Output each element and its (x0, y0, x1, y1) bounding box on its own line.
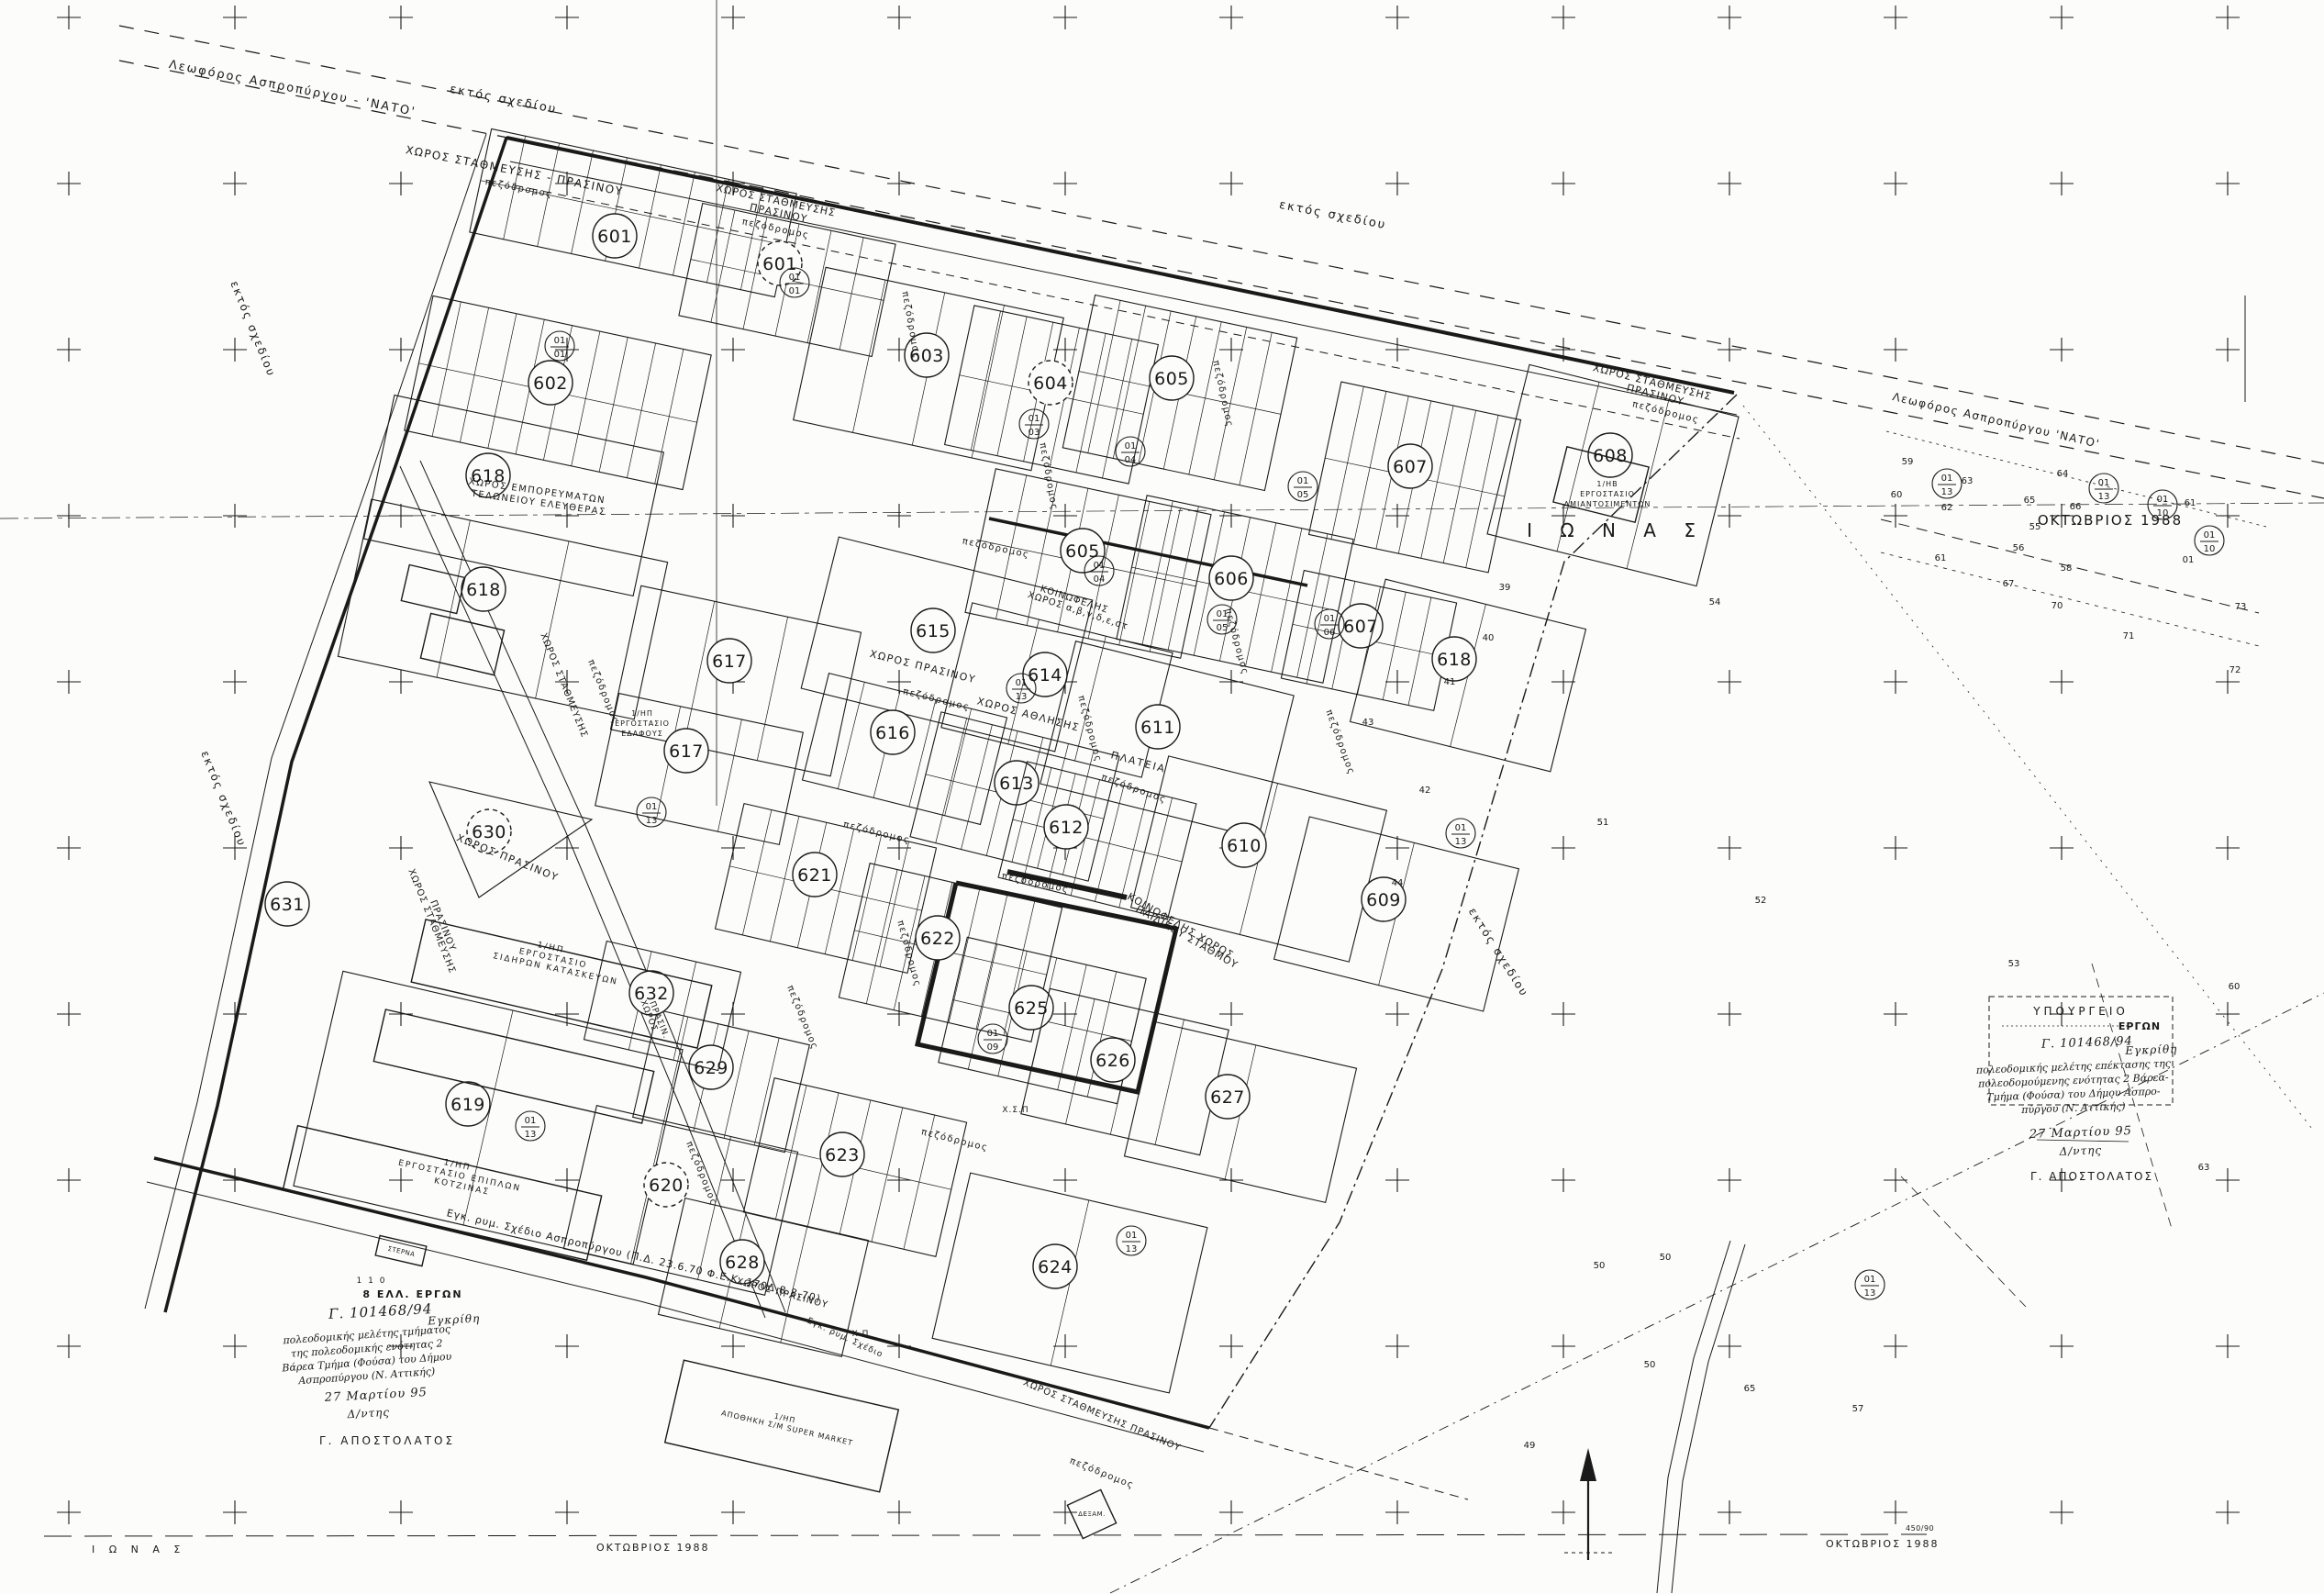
off-plan-west-lower: εκτός σχεδίου (198, 749, 249, 849)
pedestrian-street-labels: πεζόδρομοςπεζόδρομοςπεζόδρομοςπεζόδρομος… (484, 176, 1701, 1491)
plan-north-boundary-bold (506, 138, 1734, 393)
registration-cross (389, 1002, 413, 1026)
nato-avenue-south-edge (119, 61, 2324, 498)
parcel-number: 50 (1644, 1360, 1656, 1370)
pezodromos-label: πεζόδρομος (1038, 442, 1061, 512)
map-text: 01 (2157, 495, 2169, 505)
parcel-number: 58 (2061, 563, 2073, 574)
building-blocks: 6016016026036046056056066076076086186186… (265, 128, 1739, 1393)
block-607: 607 (1281, 571, 1456, 711)
registration-cross (223, 6, 247, 29)
registration-cross (1219, 1500, 1243, 1524)
block-number-605: 605 (1154, 369, 1189, 389)
registration-cross (1551, 1002, 1575, 1026)
factory-617: ΕΔΑΦΟΥΣ (621, 730, 663, 738)
factory-asbestos: ΑΜΙΑΝΤΟΣΙΜΕΝΤΩΝ (1564, 500, 1651, 508)
parcel-number: 49 (1524, 1441, 1536, 1451)
registration-cross (57, 6, 81, 29)
block-number-606: 606 (1214, 569, 1249, 589)
registration-cross (1385, 1168, 1409, 1192)
map-text: 01 (1324, 614, 1336, 624)
fraction-marker: 0105 (1288, 472, 1318, 501)
registration-cross (1884, 836, 1907, 860)
registration-cross (2216, 1168, 2240, 1192)
map-text: 09 (987, 1042, 999, 1053)
sterna: ΣΤΕΡΝΑ (387, 1245, 416, 1259)
parcel-number: 66 (2070, 502, 2082, 512)
parcel-number: 50 (1594, 1261, 1606, 1271)
registration-cross (1385, 338, 1409, 362)
fraction-marker: 0113 (2089, 474, 2118, 503)
big-spaced-ionas: Ι Ω Ν Α Σ (1527, 519, 1707, 541)
map-text: 01 (1094, 561, 1106, 571)
parcel-number: 62 (1941, 503, 1953, 513)
registration-cross (57, 172, 81, 195)
registration-cross (57, 1500, 81, 1524)
registration-cross (1551, 1500, 1575, 1524)
north-arrow (1564, 1448, 1612, 1560)
block-number-601: 601 (762, 254, 797, 274)
right-street-edge-2 (1672, 1244, 1745, 1593)
registration-cross (2050, 6, 2074, 29)
pezodromos-label: πεζόδρομος (1323, 708, 1357, 777)
director-abbrev: Δ/ντης (2058, 1143, 2102, 1158)
registration-cross (57, 1168, 81, 1192)
registration-cross (1718, 504, 1741, 528)
map-text: 01 (2204, 530, 2216, 541)
registration-cross (2216, 1500, 2240, 1524)
block-number-620: 620 (649, 1176, 684, 1196)
registration-cross (1219, 6, 1243, 29)
dexameni: ΔΕΞΑΜ. (1078, 1510, 1106, 1518)
registration-cross (887, 504, 911, 528)
registration-cross (57, 1002, 81, 1026)
fraction-marker: 0113 (1117, 1226, 1146, 1255)
map-text: 01 (1864, 1275, 1876, 1285)
registration-cross (721, 1500, 745, 1524)
registration-cross (1718, 670, 1741, 694)
block-605: 605 (1062, 295, 1296, 491)
approval-date: 27 Μαρτίου 95 (2029, 1124, 2133, 1142)
registration-cross (1884, 338, 1907, 362)
map-text: 13 (1941, 487, 1953, 497)
block-number-626: 626 (1095, 1051, 1130, 1071)
map-text: 01 (1941, 474, 1953, 484)
building-outline (373, 1009, 653, 1123)
registration-cross (1551, 6, 1575, 29)
right-street-edge-1 (1657, 1241, 1730, 1593)
pezodromos-label: πεζόδρομος (1075, 694, 1104, 763)
map-text: 04 (1094, 574, 1106, 585)
registration-cross (389, 172, 413, 195)
registration-cross (1219, 504, 1243, 528)
registration-cross (223, 670, 247, 694)
block-617: 617 (595, 694, 804, 845)
stamp-title: ΥΠΟΥΡΓΕΙΟ (2032, 1005, 2129, 1018)
block-number-602: 602 (533, 373, 568, 394)
registration-cross (223, 338, 247, 362)
off-plan-west-upper: εκτός σχεδίου (228, 279, 278, 379)
block-number-615: 615 (916, 621, 951, 641)
parcel-number: 67 (2003, 579, 2015, 589)
map-text: 01 (554, 350, 566, 360)
parcel-number: 56 (2013, 543, 2025, 553)
registration-cross (1551, 1334, 1575, 1358)
boundary-decree-label: Εγκ. ρυμ. Σχέδιο Ασπροπύργου (Π.Δ. 23.6.… (446, 1207, 822, 1305)
registration-cross (1884, 6, 1907, 29)
map-text: 13 (525, 1130, 537, 1140)
map-text: 01 (1297, 476, 1309, 486)
registration-cross (1385, 1500, 1409, 1524)
pezodromos-label: πεζόδρομος (962, 535, 1031, 560)
map-text: 01 (1455, 823, 1467, 833)
block-number-611: 611 (1140, 718, 1175, 738)
registration-cross (721, 6, 745, 29)
parcel-number: 53 (2008, 959, 2020, 969)
parcel-number: 50 (1660, 1253, 1672, 1263)
green-615: ΧΩΡΟΣ ΠΡΑΣΙΝΟΥ (869, 648, 978, 686)
mid-heavy-segment (989, 518, 1307, 585)
frame-text: ΟΚΤΩΒΡΙΟΣ 1988 (1826, 1538, 1940, 1550)
block-618: 618 (1351, 579, 1586, 772)
registration-cross (57, 338, 81, 362)
block-number-623: 623 (825, 1145, 860, 1165)
parcel-number: 60 (1891, 490, 1903, 500)
block-number-622: 622 (920, 929, 955, 949)
map-text: 01 (1125, 441, 1137, 451)
map-text: 05 (1217, 623, 1229, 633)
block-number-613: 613 (999, 774, 1034, 794)
registration-cross (2050, 338, 2074, 362)
map-text: 13 (1864, 1288, 1876, 1299)
parcel-number: 43 (1362, 718, 1374, 728)
protocol-number: Γ. 101468/94 (2040, 1034, 2133, 1052)
registration-cross (2050, 1334, 2074, 1358)
parcel-number: 61 (1935, 553, 1947, 563)
registration-cross (1053, 172, 1077, 195)
block-number-607: 607 (1393, 457, 1428, 477)
registration-cross (1385, 836, 1409, 860)
registration-cross (887, 1168, 911, 1192)
block-number-601: 601 (597, 227, 632, 247)
block-603: 603 (794, 267, 1064, 470)
registration-cross (1718, 172, 1741, 195)
map-text: 13 (1016, 692, 1028, 702)
registration-cross (721, 338, 745, 362)
registration-cross (1219, 1334, 1243, 1358)
fraction-marker: 0113 (637, 797, 666, 827)
factory-617: ΕΡΓΟΣΤΑΣΙΟ (615, 719, 670, 728)
registration-cross (1718, 1334, 1741, 1358)
block-number-629: 629 (694, 1058, 728, 1078)
stamp-sub: ΕΡΓΩΝ (2118, 1020, 2161, 1032)
parcel-number: 64 (2057, 469, 2069, 479)
parcel-number: 61 (2185, 498, 2196, 508)
registration-cross (2050, 670, 2074, 694)
registration-cross (1884, 1002, 1907, 1026)
registration-cross (1219, 172, 1243, 195)
pezodromos-label: πεζόδρομος (784, 984, 820, 1052)
registration-cross (1385, 1002, 1409, 1026)
registration-cross (389, 670, 413, 694)
registration-cross (389, 1168, 413, 1192)
map-text: 01 (1126, 1231, 1138, 1241)
block-number-610: 610 (1227, 836, 1262, 856)
fold-crease-horizontal (0, 503, 2324, 518)
approved-word: Εγκρίθη (2124, 1042, 2177, 1057)
block-number-628: 628 (725, 1253, 760, 1273)
signature-name: Γ. ΑΠΟΣΤΟΛΑΤΟΣ (2030, 1170, 2153, 1183)
block-631: 631 (265, 882, 309, 926)
block-618: 618 (338, 499, 667, 719)
registration-cross (1551, 1168, 1575, 1192)
approval-date: 27 Μαρτίου 95 (323, 1386, 428, 1405)
map-text: 01 (789, 273, 801, 283)
building-outline (420, 613, 504, 674)
ne-dotted-diagonal (1743, 406, 2312, 1129)
frame-text: 450/90 (1906, 1524, 1934, 1533)
frame-text: Ι Ω Ν Α Σ (92, 1544, 185, 1555)
registration-cross (1053, 6, 1077, 29)
registration-cross (555, 1500, 579, 1524)
map-text: 13 (2098, 492, 2110, 502)
stamp-area-diagonal-2 (1901, 1176, 2026, 1307)
registration-cross (721, 836, 745, 860)
map-text: 04 (1125, 455, 1137, 465)
registration-cross (389, 836, 413, 860)
parking-strip-line (510, 162, 1737, 415)
approval-note-bottom: 1 1 08 ΕΛΛ. ΕΡΓΩΝΓ. 101468/94Εγκρίθηπολε… (281, 1276, 481, 1447)
signature-name: Γ. ΑΠΟΣΤΟΛΑΤΟΣ (319, 1434, 455, 1447)
registration-cross (223, 504, 247, 528)
pezodromos-label: πεζόδρομος (902, 686, 972, 713)
block-number-618: 618 (466, 580, 501, 600)
registration-cross (57, 1334, 81, 1358)
cadastral-map-sheet: 6016016026036046056056066076076086186186… (0, 0, 2324, 1594)
registration-cross (1385, 670, 1409, 694)
avenue-label-east: Λεωφόρος Ασπροπύργου 'ΝΑΤΟ' (1891, 390, 2101, 451)
parcel-number: 72 (2229, 665, 2241, 675)
registration-cross (223, 172, 247, 195)
registration-cross (721, 1334, 745, 1358)
stamp-small: 1 1 0 (357, 1276, 387, 1286)
registration-cross (1718, 1168, 1741, 1192)
parking-branch: ΧΩΡΟΣ ΣΤΑΘΜΕΥΣΗΣ (538, 631, 589, 739)
registration-cross (1551, 836, 1575, 860)
parcel-number: 54 (1709, 597, 1721, 608)
registration-cross (57, 836, 81, 860)
registration-cross (1718, 1500, 1741, 1524)
map-text: 01 (2098, 478, 2110, 488)
registration-cross (1884, 670, 1907, 694)
west-road-edge (145, 134, 486, 1309)
registration-cross (1385, 172, 1409, 195)
director-abbrev: Δ/ντης (346, 1406, 390, 1421)
parcel-number: 52 (1755, 896, 1767, 906)
registration-cross (887, 172, 911, 195)
registration-cross (1551, 172, 1575, 195)
registration-cross (57, 670, 81, 694)
block-number-614: 614 (1028, 665, 1062, 686)
block-number-607: 607 (1343, 617, 1378, 637)
block-number-627: 627 (1210, 1087, 1245, 1108)
registration-cross (555, 1334, 579, 1358)
registration-cross (2050, 836, 2074, 860)
parcel-number: 39 (1499, 583, 1511, 593)
registration-cross (2216, 1334, 2240, 1358)
fraction-marker: 0101 (545, 331, 574, 361)
block-number-617: 617 (712, 652, 747, 672)
south-boundary-cont (1209, 1428, 1468, 1499)
registration-cross (1884, 1168, 1907, 1192)
map-text: 01 (987, 1029, 999, 1039)
parcel-number: 70 (2052, 601, 2063, 611)
registration-cross (1219, 338, 1243, 362)
pezodromos-label: πεζόδρομος (842, 819, 912, 846)
registration-cross (1053, 1002, 1077, 1026)
factory-asbestos: 1/ΗΒ (1596, 480, 1618, 488)
registration-cross (389, 1500, 413, 1524)
registration-cross (2216, 6, 2240, 29)
registration-cross (555, 1002, 579, 1026)
cadastral-map-canvas: 6016016026036046056056066076076086186186… (0, 0, 2324, 1594)
map-text: 01 (789, 286, 801, 296)
october-1988-right: ΟΚΤΩΒΡΙΟΣ 1988 (2038, 512, 2183, 529)
registration-cross (1385, 6, 1409, 29)
south-road-edge (147, 1182, 1204, 1452)
pezodromos-label: πεζόδρομος (585, 658, 621, 726)
registration-cross (887, 6, 911, 29)
block-number-608: 608 (1593, 446, 1628, 466)
parcel-number: 71 (2123, 631, 2135, 641)
registration-cross (1884, 172, 1907, 195)
fraction-markers: 0101010101030104010501040105010601130113… (516, 268, 2224, 1299)
protocol-number: Γ. 101468/94 (328, 1300, 433, 1322)
pezodromos-label: πεζόδρομος (1100, 772, 1169, 806)
registration-cross (1053, 1500, 1077, 1524)
block-number-612: 612 (1049, 818, 1084, 838)
parcel-number: 40 (1483, 633, 1495, 643)
map-text: 05 (1297, 490, 1309, 500)
north-arrow-head (1580, 1448, 1596, 1481)
block-627: 627 (1125, 1022, 1357, 1203)
registration-cross (1385, 1334, 1409, 1358)
registration-cross (1219, 1002, 1243, 1026)
registration-cross (1884, 1334, 1907, 1358)
registration-cross (1718, 6, 1741, 29)
block-number-621: 621 (797, 865, 832, 886)
stamp-title: 8 ΕΛΛ. ΕΡΓΩΝ (362, 1288, 462, 1300)
map-text: 13 (1455, 837, 1467, 847)
parcel-number: 59 (1902, 457, 1914, 467)
parcel-number: 41 (1444, 677, 1456, 687)
block-623: 623 (743, 1078, 966, 1257)
fraction-marker: 0113 (516, 1111, 545, 1141)
registration-cross (2216, 836, 2240, 860)
fraction-marker: 0110 (2195, 526, 2224, 555)
map-text: 13 (646, 816, 658, 826)
xsp-abbrev: Χ.Σ.Π (1002, 1106, 1029, 1115)
registration-cross (57, 504, 81, 528)
parcel-number: 55 (2029, 522, 2041, 532)
map-text: 01 (525, 1116, 537, 1126)
fraction-marker: 0109 (978, 1024, 1007, 1053)
frame-text: ΟΚΤΩΒΡΙΟΣ 1988 (596, 1542, 710, 1554)
block-number-609: 609 (1366, 890, 1401, 910)
map-text: 01 (1016, 678, 1028, 688)
block-number-604: 604 (1033, 373, 1068, 394)
registration-cross (389, 338, 413, 362)
parcel-number: 73 (2235, 602, 2247, 612)
fraction-marker: 0113 (1932, 469, 1962, 498)
block-number-624: 624 (1038, 1257, 1073, 1277)
parcel-number: 51 (1597, 818, 1609, 828)
registration-cross (2216, 504, 2240, 528)
parcel-number: 60 (2229, 982, 2241, 992)
registration-cross (721, 504, 745, 528)
fraction-marker: 0113 (1446, 819, 1475, 848)
registration-cross (887, 1500, 911, 1524)
note-body-line: πύργου (Ν. Αττικής) (2020, 1100, 2126, 1116)
registration-cross (887, 1002, 911, 1026)
registration-cross (2216, 172, 2240, 195)
registration-cross (2050, 1500, 2074, 1524)
block-number-605: 605 (1065, 541, 1100, 562)
registration-cross (1385, 504, 1409, 528)
registration-cross (389, 6, 413, 29)
parcel-number: 63 (1962, 476, 1974, 486)
map-text: 06 (1324, 628, 1336, 638)
registration-cross (1718, 1002, 1741, 1026)
registration-cross (1884, 504, 1907, 528)
sheet-bottom-frame (44, 1534, 1927, 1536)
map-text: 10 (2204, 544, 2216, 554)
registration-cross (1718, 338, 1741, 362)
avenue-label-west: Λεωφόρος Ασπροπύργου - 'ΝΑΤΟ' (168, 58, 417, 119)
registration-cross (555, 836, 579, 860)
block-number-616: 616 (875, 723, 910, 743)
block-605: 605 (965, 469, 1211, 658)
map-text: 13 (1126, 1244, 1138, 1254)
parcel-number: 65 (2024, 496, 2036, 506)
parcel-number: 63 (2198, 1163, 2210, 1173)
registration-cross (1884, 1500, 1907, 1524)
parking-green-west: ΧΩΡΟΣ ΣΤΑΘΜΕΥΣΗΣ (406, 867, 457, 975)
off-plan-top-mid: εκτός σχεδίου (1278, 198, 1388, 232)
approval-note-right: ΥΠΟΥΡΓΕΙΟΕΡΓΩΝΓ. 101468/94Εγκρίθηπολεοδο… (1975, 997, 2178, 1183)
block-number-631: 631 (270, 895, 305, 915)
block-number-618: 618 (1437, 650, 1472, 670)
fraction-marker: 0113 (1855, 1270, 1885, 1299)
parcel-number: 57 (1852, 1404, 1864, 1414)
registration-cross (721, 1168, 745, 1192)
map-text: 01 (1029, 414, 1040, 424)
registration-cross (2050, 172, 2074, 195)
registration-cross (223, 1500, 247, 1524)
fraction-marker: 0104 (1116, 437, 1145, 466)
registration-cross (1219, 1168, 1243, 1192)
parcel-number: 42 (1419, 786, 1431, 796)
west-boundary-bold (165, 138, 506, 1312)
parcel-number: 01 (2183, 555, 2195, 565)
fraction-marker: 0103 (1019, 409, 1049, 439)
block-614: 614 (941, 603, 1173, 777)
registration-cross (223, 1334, 247, 1358)
registration-cross (2216, 1002, 2240, 1026)
community-kindergarten: ΠΑΙΔΙΚΟΥ ΣΤΑΘΜΟΥ (1134, 903, 1240, 972)
block-number-617: 617 (669, 741, 704, 762)
block-607: 607 (1309, 382, 1521, 573)
